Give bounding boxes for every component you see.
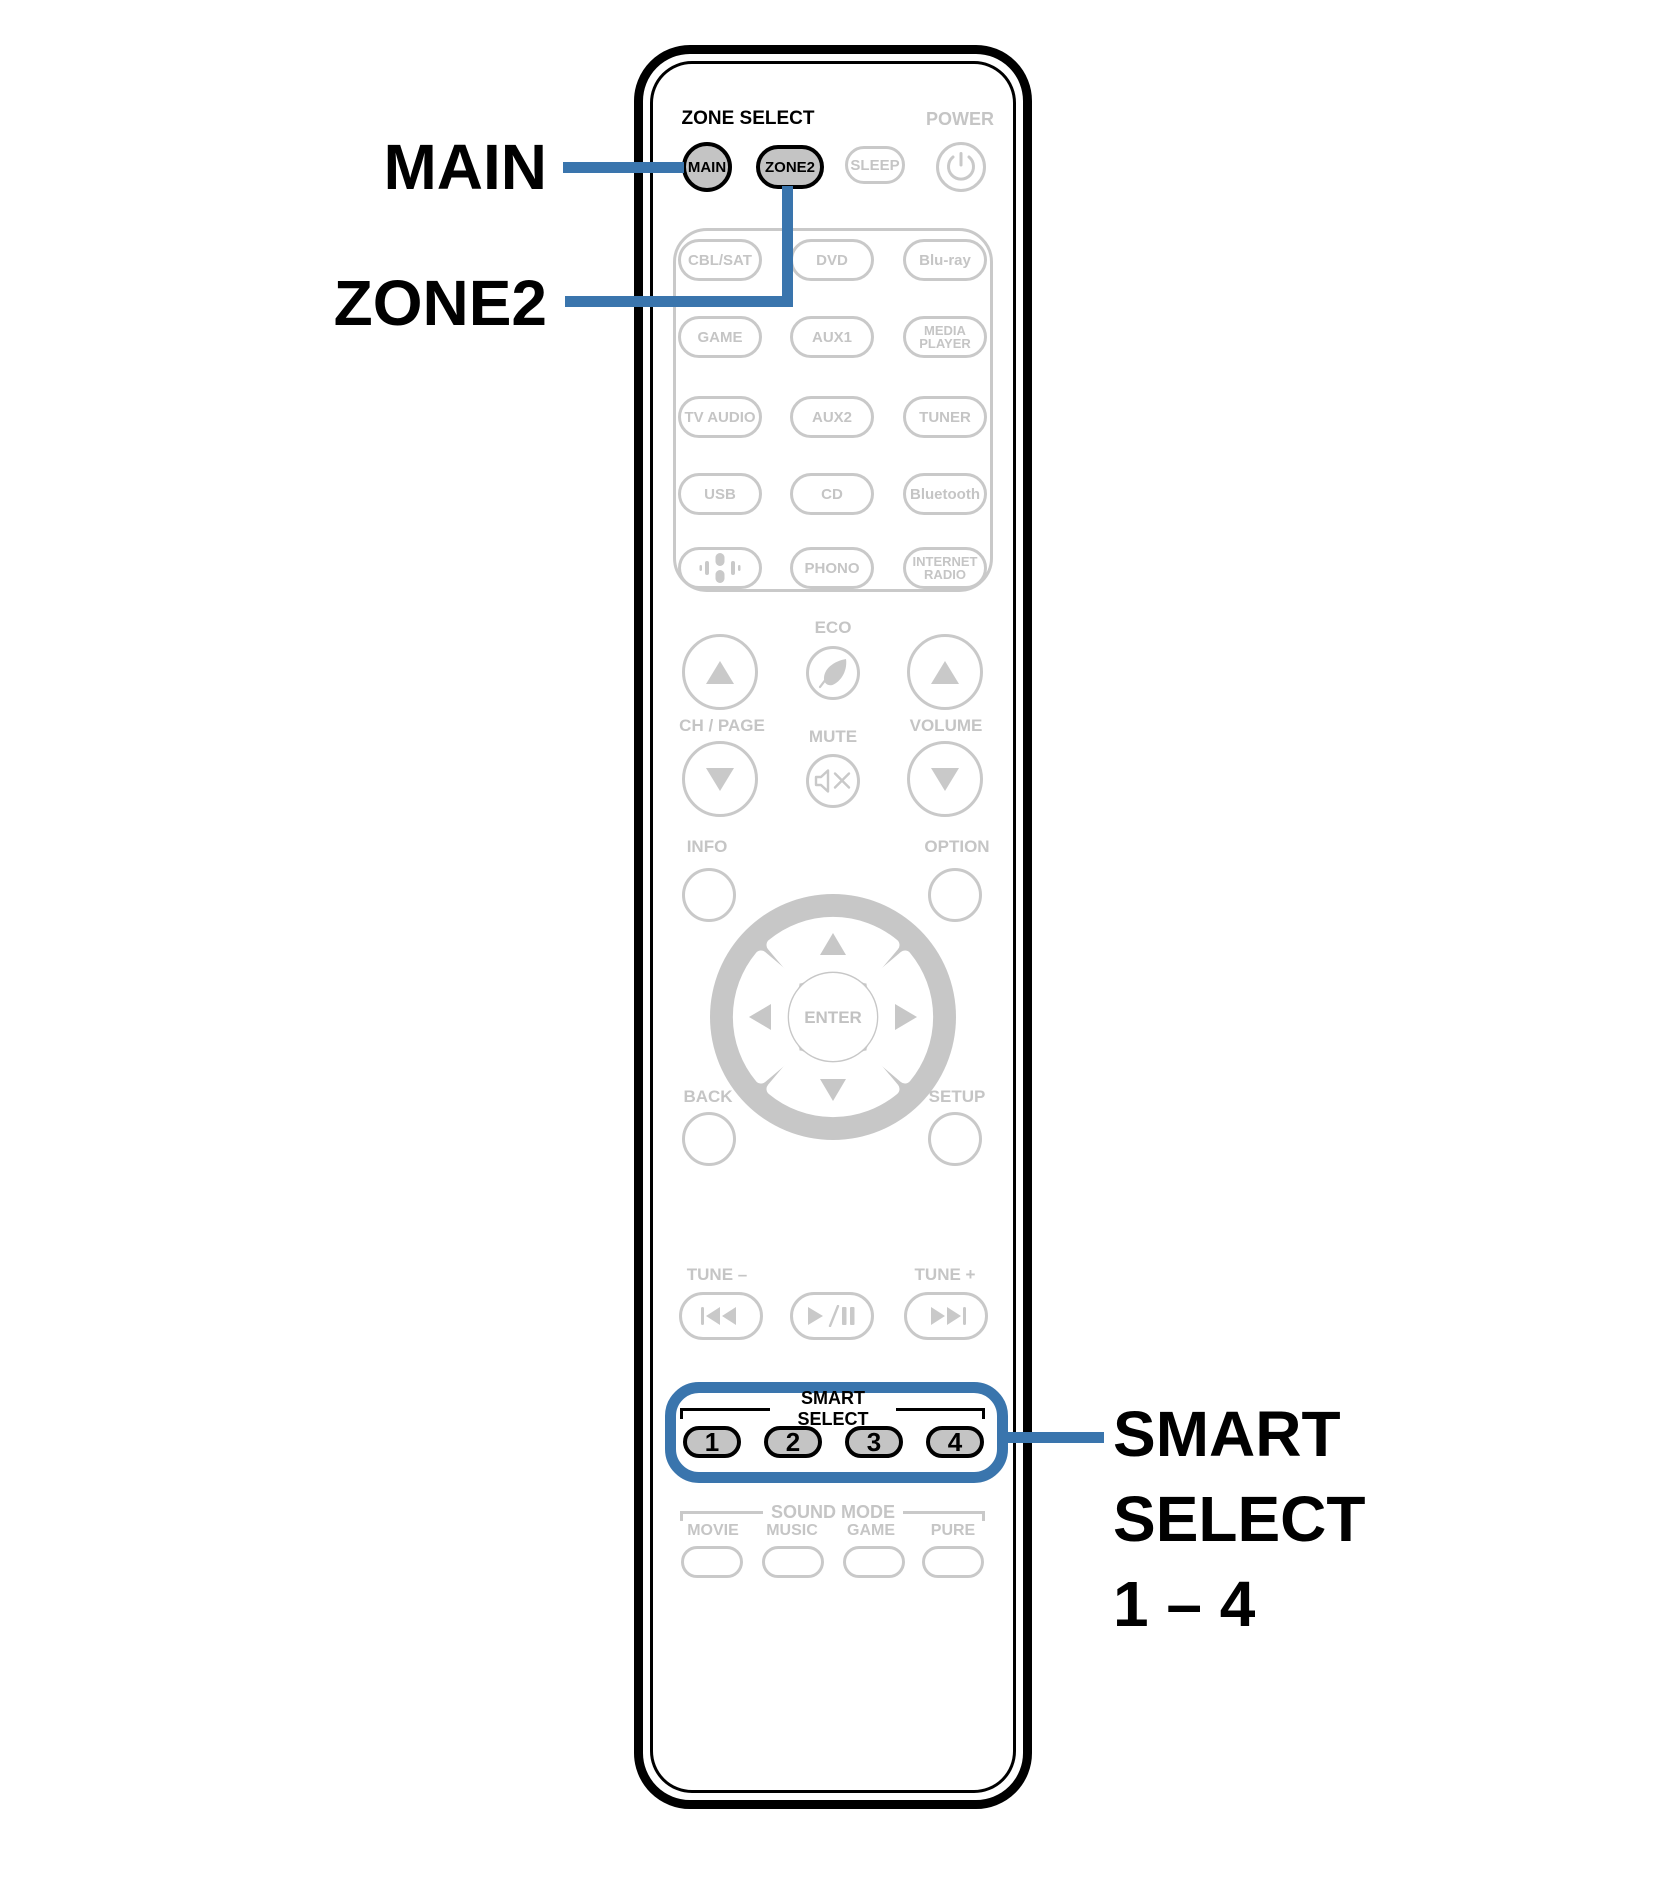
eco-button[interactable] <box>806 646 860 700</box>
sound-mode-bracket-left-tick <box>680 1511 683 1521</box>
setup-button[interactable] <box>928 1112 982 1166</box>
eco-leaf-icon <box>816 656 850 690</box>
smart-select-header: SMART SELECT <box>770 1398 896 1420</box>
smart-select-bracket-left <box>680 1408 770 1411</box>
sound-mode-bracket-right <box>900 1511 985 1514</box>
channel-page-down-button[interactable] <box>682 741 758 817</box>
source-button-aux1[interactable]: AUX1 <box>790 316 874 358</box>
sound-mode-pure-label: PURE <box>903 1521 1003 1541</box>
volume-down-button[interactable] <box>907 741 983 817</box>
tune-plus-label: TUNE + <box>885 1264 1005 1286</box>
down-triangle-icon <box>931 768 959 791</box>
callout-line-smart-select <box>1008 1432 1104 1443</box>
callout-smart-select-label: SMART SELECT 1 – 4 <box>1113 1392 1553 1647</box>
mute-label: MUTE <box>793 726 873 748</box>
dpad-up-button[interactable] <box>773 923 893 977</box>
source-button-media-player[interactable]: MEDIA PLAYER <box>903 316 987 358</box>
sound-mode-bracket-left <box>680 1511 765 1514</box>
smart-select-3-button[interactable]: 3 <box>845 1426 903 1458</box>
source-button-dvd[interactable]: DVD <box>790 239 874 281</box>
skip-back-icon <box>697 1306 745 1326</box>
callout-line-main <box>563 162 684 173</box>
source-button-internet-radio[interactable]: INTERNET RADIO <box>903 547 987 589</box>
skip-forward-icon <box>922 1306 970 1326</box>
channel-page-label: CH / PAGE <box>652 715 792 737</box>
sleep-button[interactable]: SLEEP <box>845 146 905 184</box>
volume-label: VOLUME <box>886 715 1006 737</box>
sound-bars-icon <box>698 552 742 584</box>
sound-mode-game-button[interactable] <box>843 1546 905 1578</box>
sound-mode-header: SOUND MODE <box>763 1501 903 1523</box>
smart-select-2-button[interactable]: 2 <box>764 1426 822 1458</box>
sound-mode-movie-button[interactable] <box>681 1546 743 1578</box>
mute-button[interactable] <box>806 754 860 808</box>
callout-line-zone2-vertical <box>782 186 793 307</box>
source-button-bluetooth[interactable]: Bluetooth <box>903 473 987 515</box>
up-triangle-icon <box>706 661 734 684</box>
zone2-button[interactable]: ZONE2 <box>756 145 824 189</box>
callout-main-label: MAIN <box>247 131 547 203</box>
setup-label: SETUP <box>897 1086 1017 1108</box>
dpad-left-button[interactable] <box>739 957 793 1077</box>
skip-back-button[interactable] <box>679 1292 763 1340</box>
sound-mode-bracket-right-tick <box>982 1511 985 1521</box>
sound-mode-music-button[interactable] <box>762 1546 824 1578</box>
source-button-aux2[interactable]: AUX2 <box>790 396 874 438</box>
sound-mode-pure-button[interactable] <box>922 1546 984 1578</box>
back-button[interactable] <box>682 1112 736 1166</box>
dpad-right-button[interactable] <box>873 957 927 1077</box>
info-label: INFO <box>657 836 757 858</box>
source-button-heos[interactable] <box>678 547 762 589</box>
power-icon <box>946 152 976 182</box>
callout-smart-select-line2: SELECT <box>1113 1477 1553 1562</box>
enter-label: ENTER <box>804 1008 862 1027</box>
callout-smart-select-line1: SMART <box>1113 1392 1553 1477</box>
source-button-cd[interactable]: CD <box>790 473 874 515</box>
skip-forward-button[interactable] <box>904 1292 988 1340</box>
smart-select-1-button[interactable]: 1 <box>683 1426 741 1458</box>
smart-select-bracket-right-tick <box>982 1408 985 1419</box>
channel-page-up-button[interactable] <box>682 634 758 710</box>
power-label: POWER <box>900 108 1020 130</box>
play-pause-button[interactable] <box>790 1292 874 1340</box>
zone-select-label: ZONE SELECT <box>668 108 828 130</box>
source-button-game[interactable]: GAME <box>678 316 762 358</box>
source-button-tuner[interactable]: TUNER <box>903 396 987 438</box>
up-triangle-icon <box>931 661 959 684</box>
source-button-usb[interactable]: USB <box>678 473 762 515</box>
option-label: OPTION <box>897 836 1017 858</box>
callout-line-zone2-horizontal <box>565 296 793 307</box>
smart-select-4-button[interactable]: 4 <box>926 1426 984 1458</box>
mute-icon <box>814 769 852 793</box>
callout-smart-select-line3: 1 – 4 <box>1113 1562 1553 1647</box>
smart-select-bracket-left-tick <box>680 1408 683 1419</box>
source-button-blu-ray[interactable]: Blu-ray <box>903 239 987 281</box>
source-button-phono[interactable]: PHONO <box>790 547 874 589</box>
smart-select-bracket-right <box>895 1408 985 1411</box>
tune-minus-label: TUNE – <box>647 1264 787 1286</box>
source-button-cbl-sat[interactable]: CBL/SAT <box>678 239 762 281</box>
main-button[interactable]: MAIN <box>682 142 732 192</box>
down-triangle-icon <box>706 768 734 791</box>
dpad-down-button[interactable] <box>773 1057 893 1111</box>
play-pause-icon <box>805 1305 859 1327</box>
callout-zone2-label: ZONE2 <box>247 267 547 339</box>
power-button[interactable] <box>936 142 986 192</box>
eco-label: ECO <box>793 617 873 639</box>
back-label: BACK <box>648 1086 768 1108</box>
volume-up-button[interactable] <box>907 634 983 710</box>
source-button-tv-audio[interactable]: TV AUDIO <box>678 396 762 438</box>
